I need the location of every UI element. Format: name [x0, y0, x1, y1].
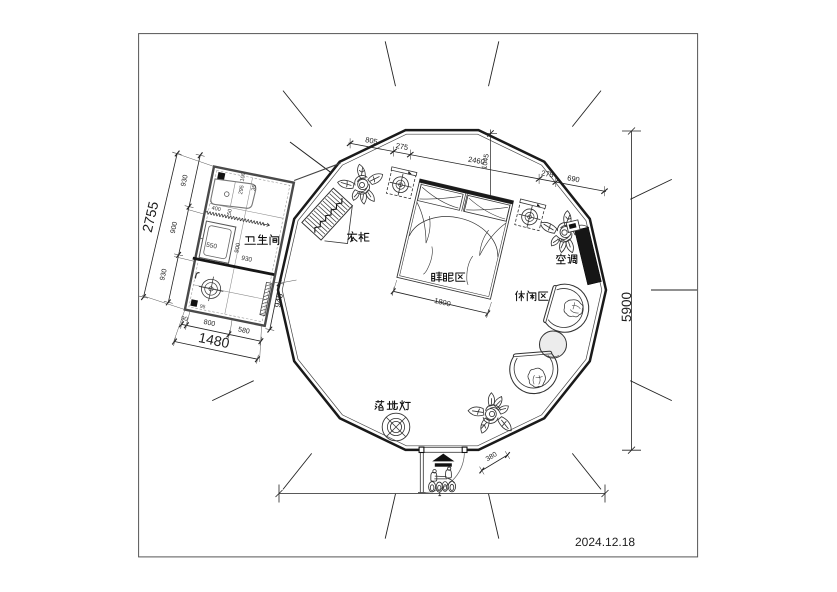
svg-text:50: 50 [227, 208, 234, 215]
svg-text:2024.12.18: 2024.12.18 [575, 535, 635, 549]
svg-text:5900: 5900 [619, 292, 634, 322]
svg-text:35: 35 [251, 184, 258, 191]
